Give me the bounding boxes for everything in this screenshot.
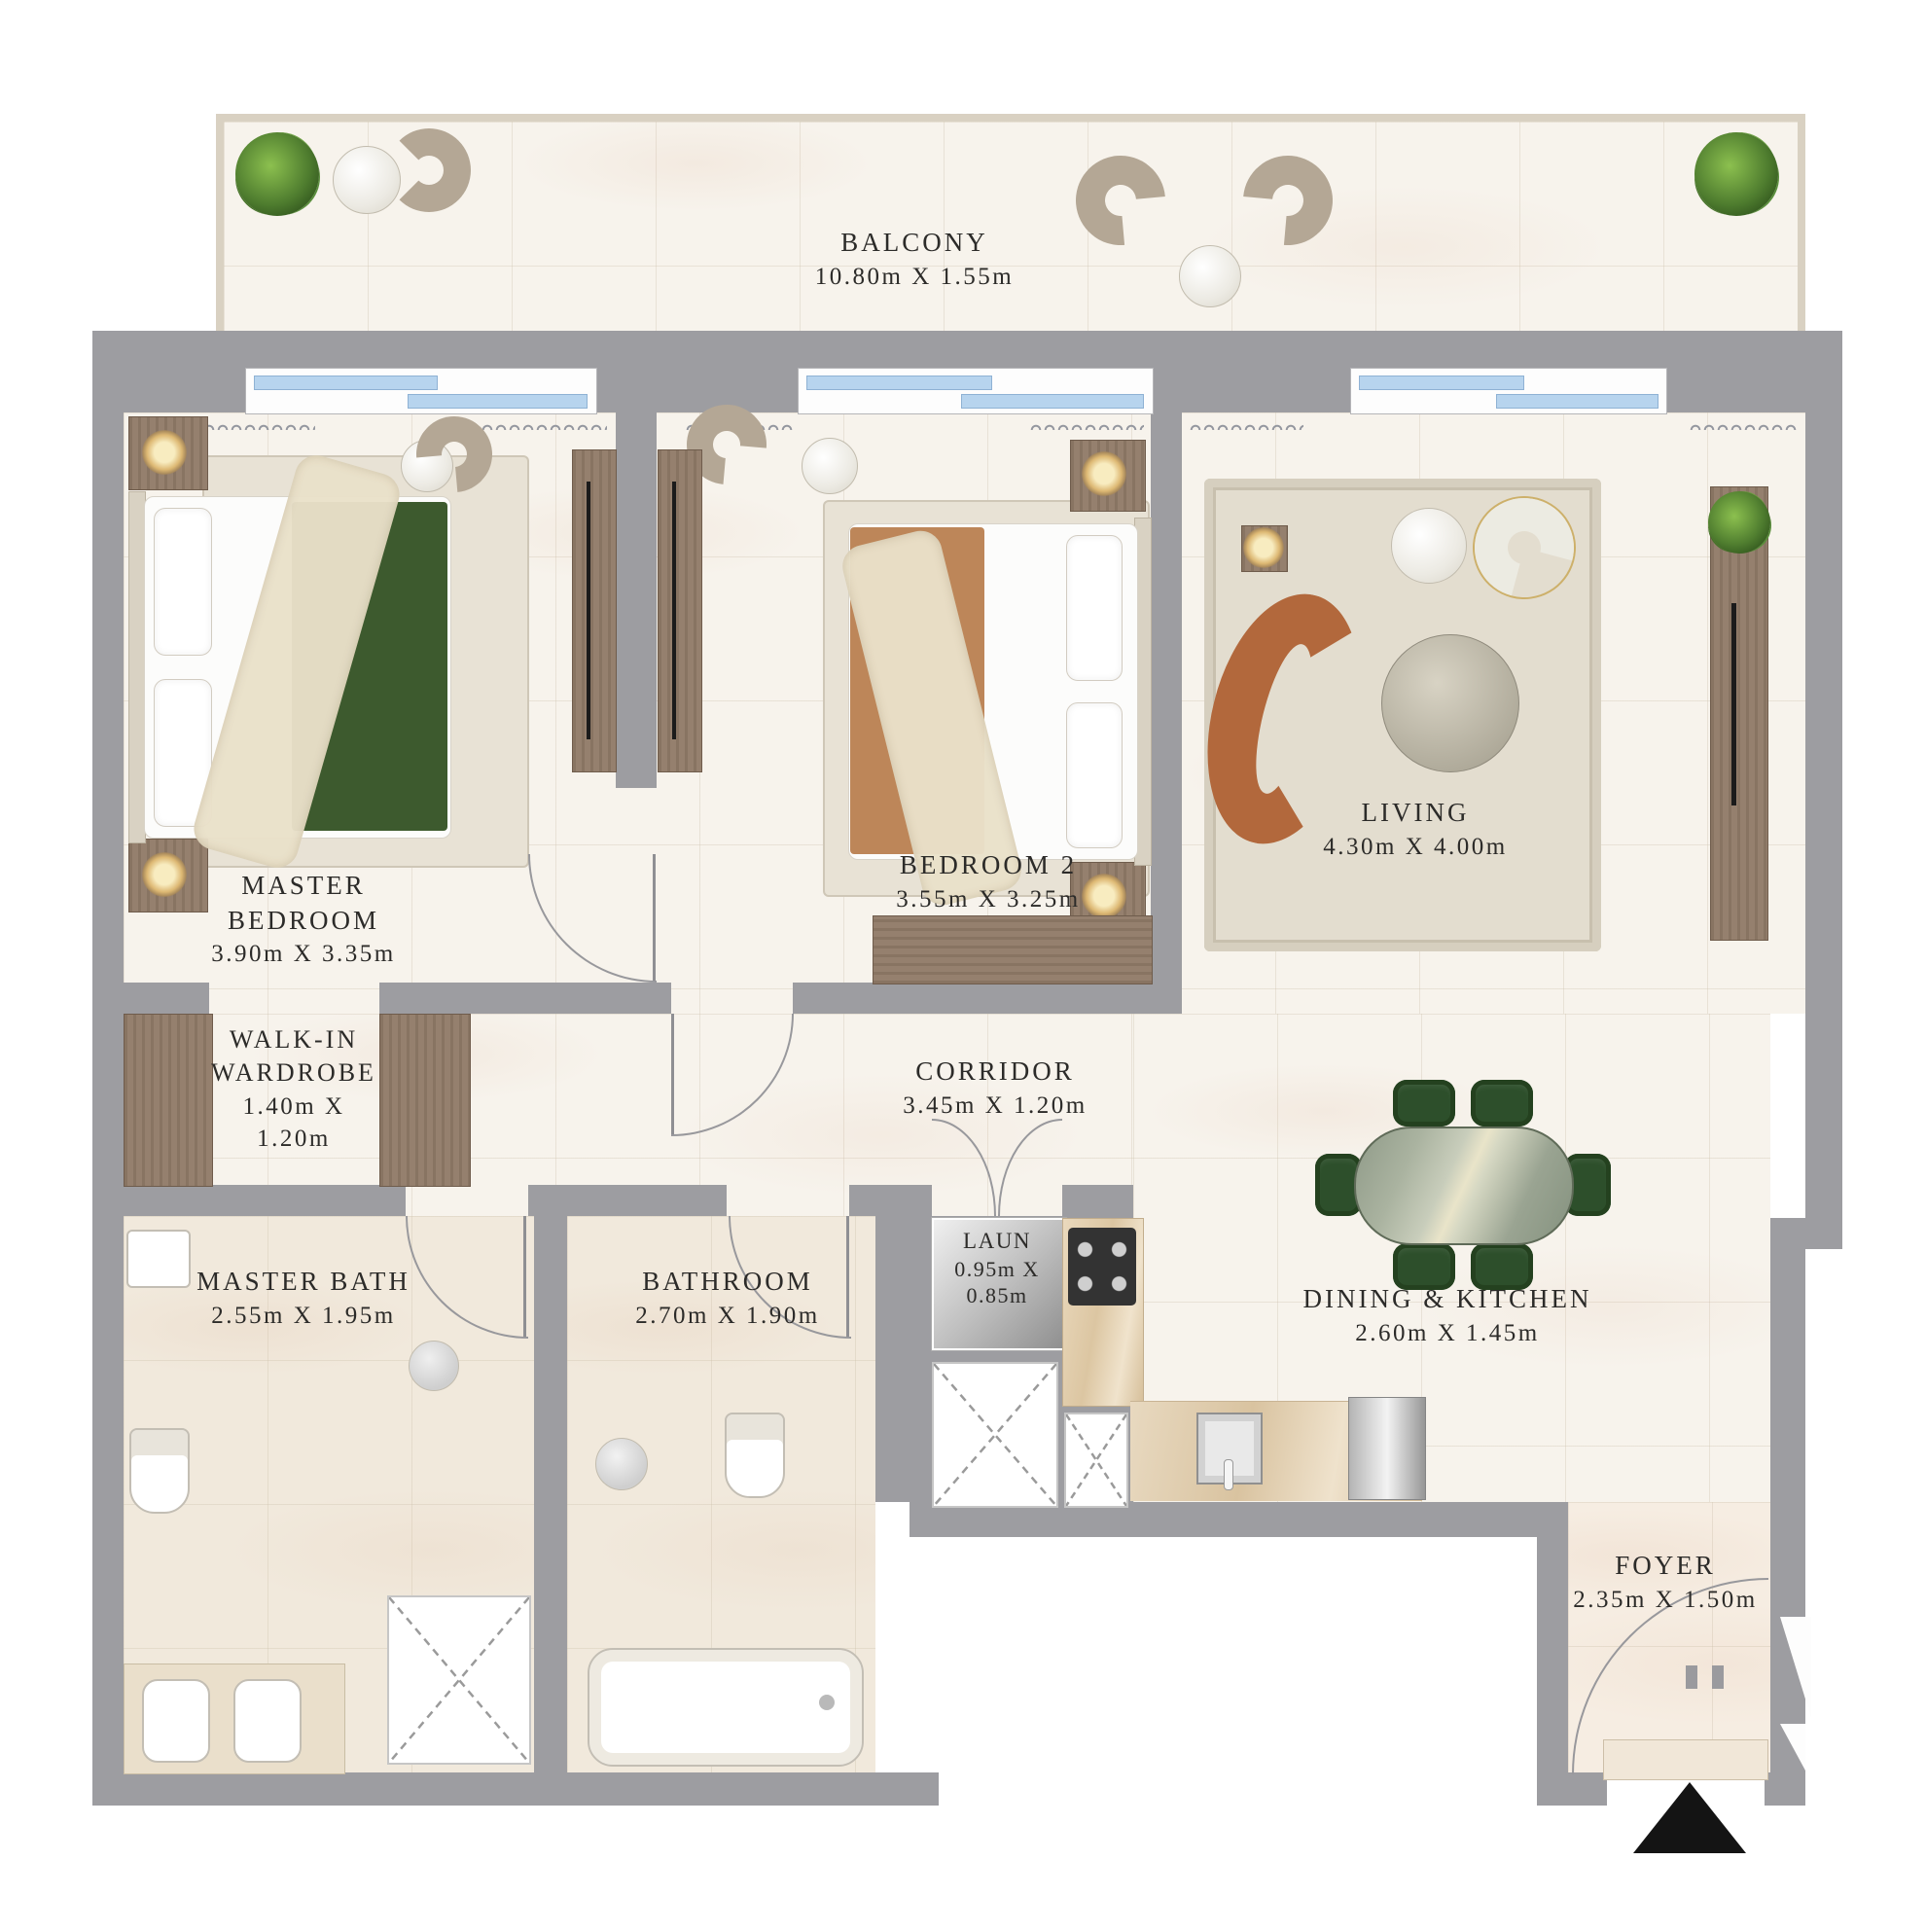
room-name: FOYER bbox=[1573, 1549, 1757, 1584]
window-master-bedroom bbox=[245, 368, 597, 414]
pillow bbox=[154, 508, 212, 656]
tv-icon bbox=[1731, 603, 1736, 805]
shower bbox=[387, 1595, 531, 1765]
door-leaf bbox=[523, 1216, 526, 1337]
wall bbox=[528, 1185, 727, 1216]
room-name: MASTER bbox=[211, 869, 395, 904]
window-bedroom-2 bbox=[798, 368, 1154, 414]
room-label-master-bath: MASTER BATH 2.55m X 1.95m bbox=[196, 1265, 410, 1332]
bedroom2-dresser bbox=[873, 915, 1153, 984]
wall bbox=[92, 1772, 939, 1806]
wall bbox=[1805, 331, 1842, 1249]
balcony-railing-right bbox=[1798, 114, 1805, 331]
coffee-table bbox=[1381, 634, 1519, 772]
dresser bbox=[658, 449, 702, 772]
room-name: CORRIDOR bbox=[903, 1055, 1087, 1090]
room-dims: 4.30m X 4.00m bbox=[1323, 831, 1507, 863]
room-name: BATHROOM bbox=[635, 1265, 819, 1300]
vanity-sink bbox=[142, 1679, 210, 1763]
door-leaf bbox=[653, 854, 656, 981]
room-name: BEDROOM 2 bbox=[896, 848, 1080, 883]
room-label-walk-in-wardrobe: WALK-IN WARDROBE 1.40m X 1.20m bbox=[211, 1023, 376, 1155]
room-dims: 0.95m X bbox=[954, 1256, 1040, 1283]
dresser bbox=[572, 449, 617, 772]
room-label-corridor: CORRIDOR 3.45m X 1.20m bbox=[903, 1055, 1087, 1122]
wall bbox=[124, 1185, 406, 1216]
room-label-balcony: BALCONY 10.80m X 1.55m bbox=[815, 226, 1014, 293]
window-living bbox=[1350, 368, 1667, 414]
room-label-bathroom: BATHROOM 2.70m X 1.90m bbox=[635, 1265, 819, 1332]
stove-icon bbox=[1068, 1228, 1136, 1306]
balcony-armchair bbox=[387, 128, 471, 212]
faucet-icon bbox=[1224, 1459, 1233, 1490]
entry-door-sill bbox=[1603, 1739, 1768, 1780]
toilet-icon bbox=[725, 1413, 785, 1498]
door-jamb bbox=[1712, 1665, 1724, 1689]
room-dims: 2.70m X 1.90m bbox=[635, 1300, 819, 1332]
lamp-icon bbox=[1243, 527, 1284, 568]
dining-chair bbox=[1471, 1080, 1533, 1127]
wall bbox=[124, 983, 209, 1014]
lamp-icon bbox=[142, 430, 187, 475]
plant-icon bbox=[235, 132, 319, 216]
room-name: WALK-IN bbox=[211, 1023, 376, 1056]
toilet-icon bbox=[129, 1428, 190, 1514]
room-dims: 3.55m X 3.25m bbox=[896, 883, 1080, 915]
balcony-railing-top bbox=[216, 114, 1805, 122]
room-name: MASTER BATH bbox=[196, 1265, 410, 1300]
door-jamb bbox=[1686, 1665, 1697, 1689]
lamp-icon bbox=[142, 852, 187, 897]
room-label-dining-kitchen: DINING & KITCHEN 2.60m X 1.45m bbox=[1303, 1282, 1592, 1349]
wall bbox=[1537, 1502, 1568, 1806]
room-name: BALCONY bbox=[815, 226, 1014, 261]
room-name: LAUN bbox=[954, 1228, 1040, 1256]
room-dims: 1.40m X bbox=[211, 1091, 376, 1123]
room-name: LIVING bbox=[1323, 796, 1507, 831]
wall bbox=[849, 1185, 932, 1216]
fridge bbox=[1348, 1397, 1426, 1500]
tv-icon bbox=[672, 482, 676, 739]
pedestal-sink bbox=[595, 1438, 648, 1490]
wall bbox=[379, 983, 671, 1014]
lamp-icon bbox=[1082, 451, 1126, 496]
room-dims: 10.80m X 1.55m bbox=[815, 261, 1014, 293]
entry-arrow-icon bbox=[1633, 1782, 1746, 1853]
wall bbox=[616, 412, 657, 788]
door-leaf bbox=[846, 1216, 849, 1337]
wall bbox=[1770, 1249, 1805, 1806]
curtain-icon bbox=[1029, 416, 1144, 430]
wall bbox=[793, 983, 1182, 1014]
pillow bbox=[1066, 702, 1123, 848]
shaft bbox=[1064, 1413, 1128, 1508]
pedestal-sink bbox=[409, 1341, 459, 1391]
dining-chair bbox=[1393, 1080, 1455, 1127]
wall bbox=[92, 331, 124, 1806]
side-table bbox=[802, 438, 858, 494]
balcony-side-table bbox=[1179, 245, 1241, 307]
wall bbox=[534, 1216, 567, 1772]
wall bbox=[1151, 412, 1182, 1014]
room-name: WARDROBE bbox=[211, 1056, 376, 1090]
room-label-living: LIVING 4.30m X 4.00m bbox=[1323, 796, 1507, 863]
balcony-railing-left bbox=[216, 114, 224, 331]
wardrobe-panel bbox=[124, 1014, 213, 1187]
room-dims: 1.20m bbox=[211, 1123, 376, 1155]
curtain-icon bbox=[1189, 416, 1303, 430]
room-dims: 3.45m X 1.20m bbox=[903, 1090, 1087, 1122]
wall bbox=[1537, 1772, 1607, 1806]
dining-table bbox=[1354, 1127, 1574, 1245]
room-label-bedroom-2: BEDROOM 2 3.55m X 3.25m bbox=[896, 848, 1080, 915]
wall bbox=[1765, 1772, 1805, 1806]
door-leaf bbox=[671, 1014, 674, 1134]
room-dims: 2.55m X 1.95m bbox=[196, 1300, 410, 1332]
room-label-master-bedroom: MASTER BEDROOM 3.90m X 3.35m bbox=[211, 869, 395, 970]
lamp-icon bbox=[1082, 874, 1126, 918]
tub-faucet-icon bbox=[819, 1695, 835, 1710]
room-name: DINING & KITCHEN bbox=[1303, 1282, 1592, 1317]
wall bbox=[1062, 1185, 1133, 1216]
room-dims: 3.90m X 3.35m bbox=[211, 938, 395, 970]
plant-icon bbox=[1708, 491, 1770, 554]
wall bbox=[1770, 1218, 1842, 1249]
room-label-foyer: FOYER 2.35m X 1.50m bbox=[1573, 1549, 1757, 1616]
floor-plan: BALCONY 10.80m X 1.55m MASTER BEDROOM 3.… bbox=[0, 0, 1926, 1932]
room-label-laundry: LAUN 0.95m X 0.85m bbox=[954, 1228, 1040, 1309]
room-name: BEDROOM bbox=[211, 904, 395, 939]
shaft bbox=[932, 1362, 1058, 1508]
tv-icon bbox=[587, 482, 590, 739]
pillow bbox=[1066, 535, 1123, 681]
side-table bbox=[1391, 508, 1467, 584]
tv-console bbox=[1710, 486, 1768, 941]
vanity-sink bbox=[233, 1679, 302, 1763]
curtain-icon bbox=[1689, 416, 1798, 430]
room-dims: 0.85m bbox=[954, 1282, 1040, 1309]
bath-shelf bbox=[126, 1230, 191, 1288]
room-dims: 2.35m X 1.50m bbox=[1573, 1584, 1757, 1616]
room-dims: 2.60m X 1.45m bbox=[1303, 1317, 1592, 1349]
plant-icon bbox=[1694, 132, 1778, 216]
wardrobe-panel bbox=[379, 1014, 471, 1187]
